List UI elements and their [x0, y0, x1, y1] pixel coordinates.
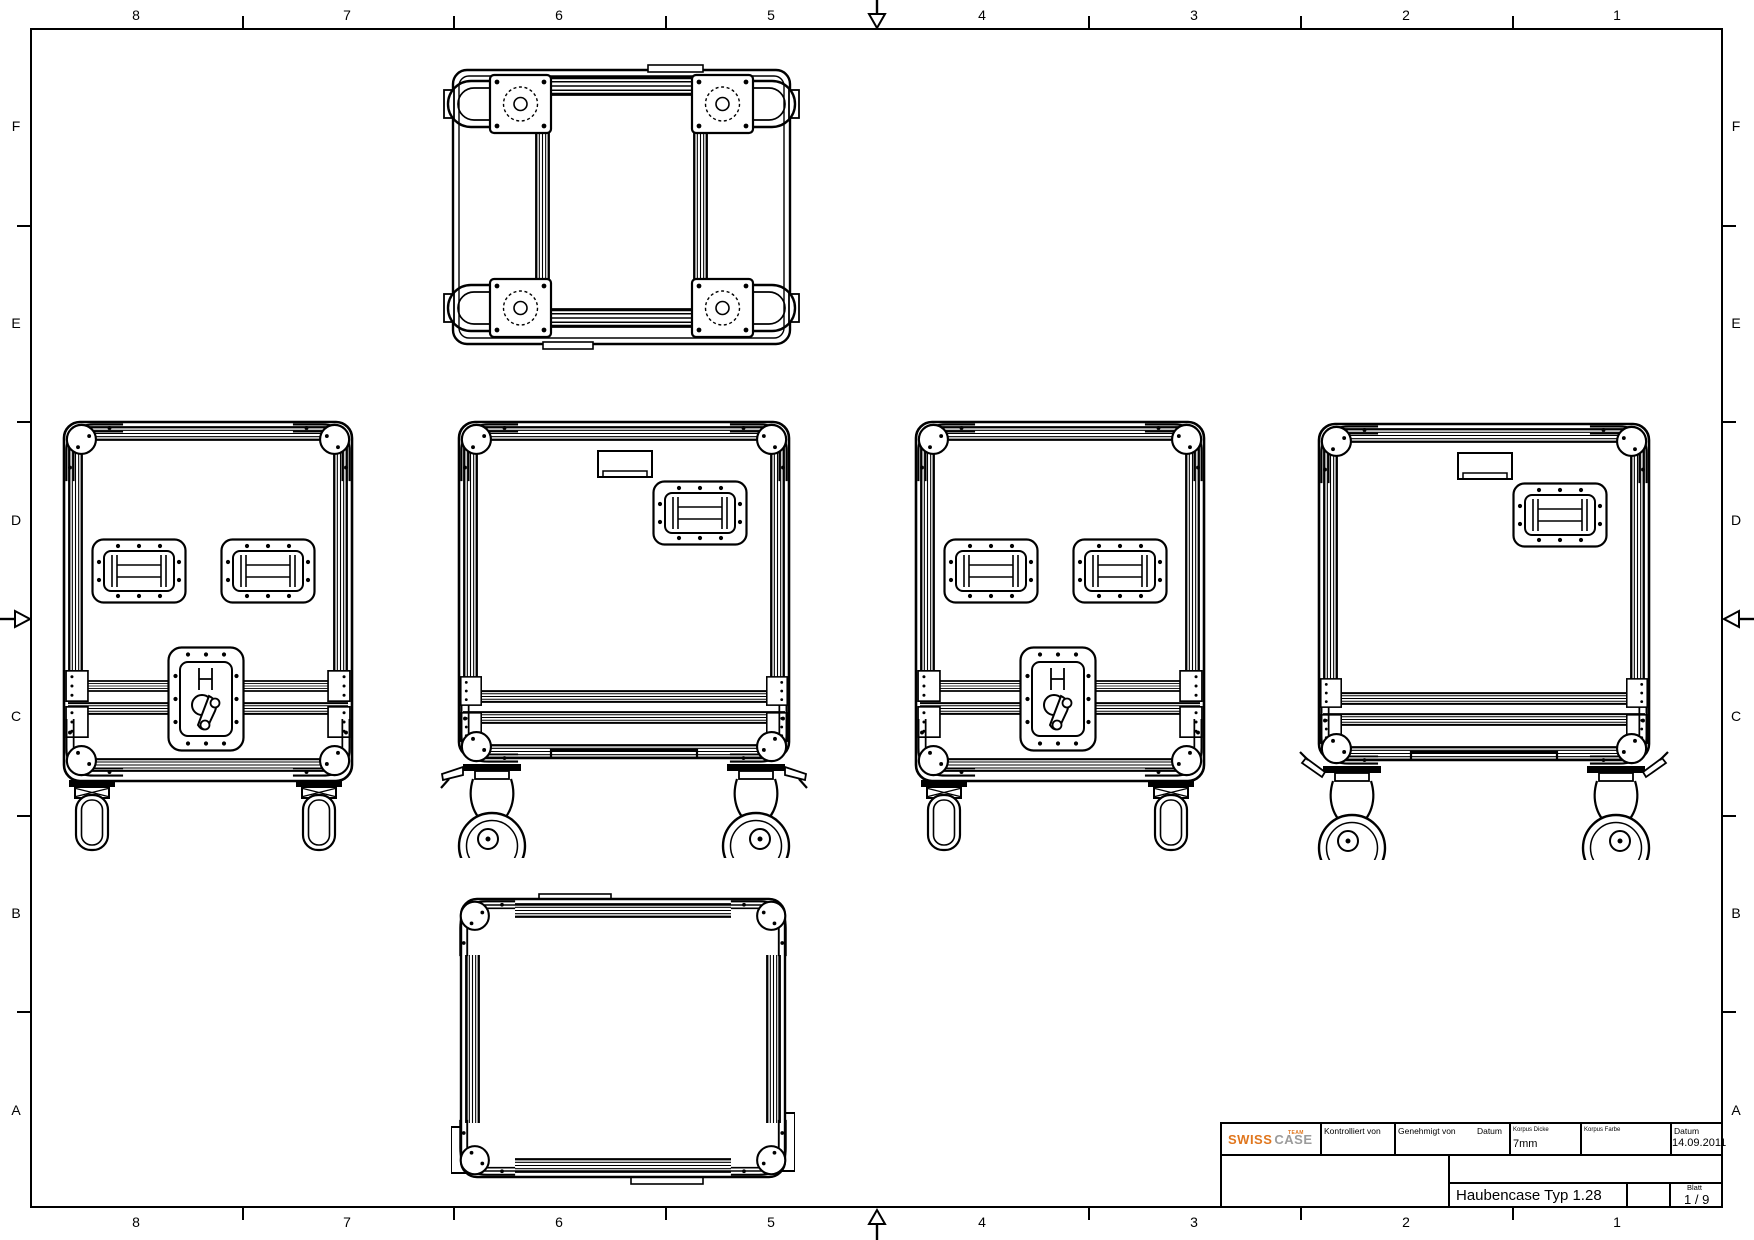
- datum-value: 14.09.2011: [1672, 1138, 1726, 1149]
- grid-tick: [1088, 1207, 1090, 1220]
- blatt-value: 1 / 9: [1684, 1193, 1709, 1206]
- grid-col-label: 3: [1190, 8, 1198, 22]
- grid-tick: [17, 815, 30, 817]
- grid-row-label: F: [1732, 119, 1741, 133]
- korpus-dicke-label: Korpus Dicke: [1513, 1127, 1549, 1133]
- grid-col-label: 4: [978, 8, 986, 22]
- grid-row-label: B: [11, 906, 20, 920]
- grid-row-label: A: [1731, 1103, 1740, 1117]
- grid-col-label: 3: [1190, 1215, 1198, 1229]
- blatt-label: Blatt: [1687, 1184, 1702, 1192]
- grid-col-label: 5: [767, 8, 775, 22]
- grid-tick: [665, 16, 667, 29]
- grid-col-label: 1: [1613, 1215, 1621, 1229]
- grid-col-label: 4: [978, 1215, 986, 1229]
- drawing-sheet: 8 7 6 5 4 3 2 1 8 7 6 5 4 3 2 1 F E D C …: [0, 0, 1754, 1240]
- grid-row-label: E: [11, 316, 20, 330]
- grid-col-label: 7: [343, 8, 351, 22]
- bottom-view: [451, 893, 795, 1185]
- grid-tick: [1512, 1207, 1514, 1220]
- grid-tick: [1088, 16, 1090, 29]
- grid-tick: [1300, 16, 1302, 29]
- drawing-title: Haubencase Typ 1.28: [1456, 1188, 1602, 1203]
- grid-tick: [665, 1207, 667, 1220]
- korpus-farbe-label: Korpus Farbe: [1584, 1127, 1620, 1133]
- genehmigt-label: Genehmigt von: [1398, 1127, 1456, 1136]
- logo-swiss-text: SWISS: [1228, 1132, 1272, 1147]
- grid-tick: [1723, 225, 1736, 227]
- grid-row-label: A: [11, 1103, 20, 1117]
- grid-row-label: C: [1731, 709, 1741, 723]
- grid-col-label: 6: [555, 1215, 563, 1229]
- center-mark-top-icon: [859, 0, 895, 30]
- grid-col-label: 7: [343, 1215, 351, 1229]
- grid-tick: [453, 16, 455, 29]
- grid-tick: [1512, 16, 1514, 29]
- grid-tick: [1300, 1207, 1302, 1220]
- grid-col-label: 8: [132, 1215, 140, 1229]
- grid-col-label: 8: [132, 8, 140, 22]
- grid-row-label: B: [1731, 906, 1740, 920]
- datum2-label: Datum: [1674, 1127, 1699, 1136]
- grid-tick: [242, 16, 244, 29]
- center-mark-left-icon: [0, 603, 32, 635]
- grid-row-label: F: [12, 119, 21, 133]
- grid-col-label: 6: [555, 8, 563, 22]
- front-view: [437, 418, 811, 858]
- grid-row-label: E: [1731, 316, 1740, 330]
- side-view-left: [60, 418, 356, 852]
- grid-tick: [17, 421, 30, 423]
- center-mark-bottom-icon: [859, 1208, 895, 1240]
- back-view: [1297, 420, 1671, 860]
- grid-tick: [1723, 1011, 1736, 1013]
- grid-row-label: D: [11, 513, 21, 527]
- grid-tick: [1723, 815, 1736, 817]
- grid-col-label: 2: [1402, 8, 1410, 22]
- grid-col-label: 2: [1402, 1215, 1410, 1229]
- grid-tick: [453, 1207, 455, 1220]
- datum-label: Datum: [1477, 1127, 1502, 1136]
- grid-col-label: 1: [1613, 8, 1621, 22]
- top-view: [443, 62, 800, 352]
- kontrolliert-label: Kontrolliert von: [1324, 1127, 1381, 1136]
- grid-tick: [242, 1207, 244, 1220]
- grid-row-label: C: [11, 709, 21, 723]
- logo-team-text: TEAM: [1288, 1131, 1304, 1136]
- title-block: SWISSCASE TEAM Kontrolliert von Genehmig…: [1220, 1122, 1723, 1208]
- korpus-dicke-value: 7mm: [1513, 1139, 1537, 1150]
- grid-col-label: 5: [767, 1215, 775, 1229]
- grid-tick: [17, 225, 30, 227]
- center-mark-right-icon: [1722, 603, 1754, 635]
- grid-row-label: D: [1731, 513, 1741, 527]
- grid-tick: [1723, 421, 1736, 423]
- grid-tick: [17, 1011, 30, 1013]
- side-view-right: [912, 418, 1208, 852]
